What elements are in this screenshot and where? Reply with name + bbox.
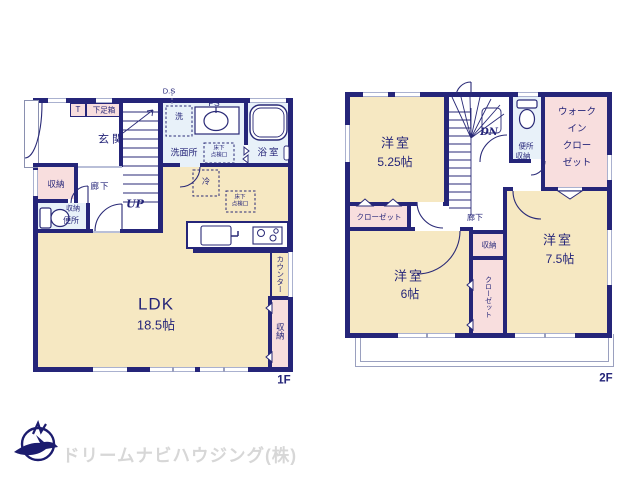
room-ldk-kitchen <box>163 167 288 233</box>
wall <box>509 97 513 159</box>
bathroom-door-opening <box>244 145 248 163</box>
wall <box>163 163 180 167</box>
window <box>607 230 612 285</box>
window <box>93 367 127 372</box>
wall <box>120 229 163 233</box>
wic-label: イン <box>567 124 586 134</box>
shoe-box-label: 下足箱 <box>93 106 116 114</box>
window <box>607 155 612 180</box>
window <box>518 92 538 97</box>
room-size-label: 5.25帖 <box>377 156 412 168</box>
room-label: 洋室 <box>381 137 411 150</box>
wic-label: ウォーク <box>558 107 596 117</box>
window <box>395 92 420 97</box>
ds-label: D.S <box>163 87 176 95</box>
room-size-label: 6帖 <box>401 288 420 300</box>
window-tick <box>426 333 428 338</box>
wall <box>270 248 272 298</box>
toilet-label: 便所 <box>519 142 534 150</box>
window <box>345 125 350 162</box>
wall <box>33 229 93 233</box>
wall <box>38 199 68 203</box>
entrance-label: 玄関 <box>98 135 126 146</box>
wall <box>582 187 607 191</box>
threshold <box>93 231 120 233</box>
wic-label: クロー <box>563 141 592 151</box>
window-tick <box>223 367 225 372</box>
closet-label: クローゼット <box>357 213 402 221</box>
wall <box>541 187 558 191</box>
window <box>363 92 388 97</box>
wall <box>268 300 272 367</box>
ldk-size-label: 18.5帖 <box>137 319 175 332</box>
window <box>96 98 112 103</box>
storage-label: 収納 <box>276 323 285 340</box>
up-label: UP <box>126 199 144 210</box>
wic-label: ゼット <box>563 158 592 168</box>
wall <box>33 163 78 167</box>
toilet-label: 便所 <box>63 217 79 225</box>
ps-label: PS <box>208 99 219 108</box>
company-logo-icon <box>14 423 58 460</box>
wall <box>444 97 449 202</box>
wall <box>503 190 507 333</box>
floorplan-canvas: D.S T 下足箱 玄関 洗 PS 洗面所 床下 点検口 浴室 収納 廊下 収納… <box>0 0 640 480</box>
underfloor-label: 点検口 <box>211 153 228 159</box>
counter-label: カウンター <box>276 255 284 293</box>
wall <box>469 231 473 333</box>
underfloor-label: 床下 <box>213 146 224 152</box>
entrance-opening <box>33 104 38 158</box>
wall <box>473 230 507 234</box>
storage-label: 収納 <box>66 206 80 213</box>
company-name: ドリームナビハウジング(株) <box>62 443 297 468</box>
underfloor-label: 床下 <box>234 195 245 201</box>
step-edge <box>78 166 122 168</box>
wall <box>345 227 415 231</box>
wall <box>407 206 411 227</box>
window-tick <box>544 333 546 338</box>
shoe-t-label: T <box>76 106 81 114</box>
wall <box>473 256 507 260</box>
floor2-tag: 2F <box>599 373 612 385</box>
window <box>48 98 66 103</box>
hallway-label: 廊下 <box>90 182 109 191</box>
room-label: 洋室 <box>543 234 573 247</box>
storage-label: 収納 <box>47 180 64 189</box>
window <box>288 252 293 297</box>
wall <box>74 167 78 203</box>
dn-label: DN <box>480 128 498 138</box>
wall <box>86 203 90 231</box>
wall <box>244 103 248 145</box>
window <box>250 98 286 103</box>
wall <box>443 202 449 206</box>
room-label: 洋室 <box>394 270 424 283</box>
closet-label: クローゼット <box>485 276 492 318</box>
wic-door-opening <box>558 187 582 191</box>
room-size-label: 7.5帖 <box>546 253 575 265</box>
floor1-tag: 1F <box>277 375 290 387</box>
storage-label: 収納 <box>516 152 531 160</box>
washer-label: 洗 <box>175 113 183 121</box>
window-tick <box>172 367 174 372</box>
balcony-inner <box>360 334 609 362</box>
bathroom-label: 浴室 <box>257 148 280 158</box>
ldk-label: LDK <box>138 296 174 313</box>
washroom-label: 洗面所 <box>170 149 197 158</box>
storage-label: 収納 <box>482 241 497 249</box>
hallway-label: 廊下 <box>467 214 483 222</box>
window <box>33 170 38 196</box>
wall <box>541 97 545 191</box>
wall <box>200 163 288 167</box>
underfloor-label: 点検口 <box>232 202 249 208</box>
wall <box>503 187 513 191</box>
fridge-label: 冷 <box>202 178 210 186</box>
